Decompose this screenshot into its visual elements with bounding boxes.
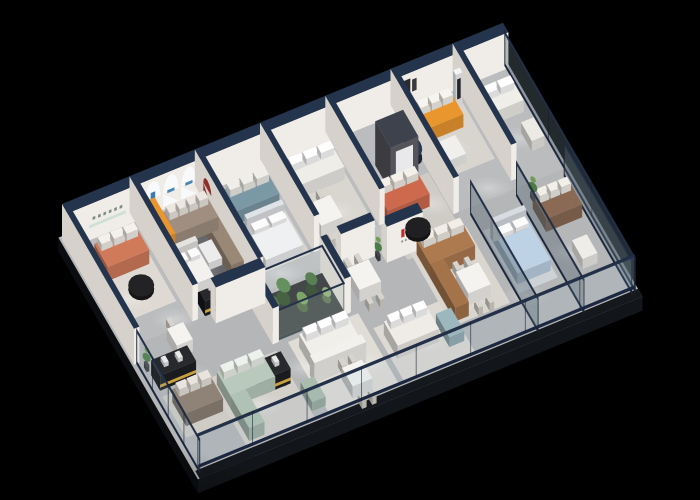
showroom-3d-render xyxy=(0,0,700,500)
showroom-screenshot xyxy=(0,0,700,500)
vignette-layer xyxy=(0,0,700,500)
vignette-overlay xyxy=(0,0,700,500)
